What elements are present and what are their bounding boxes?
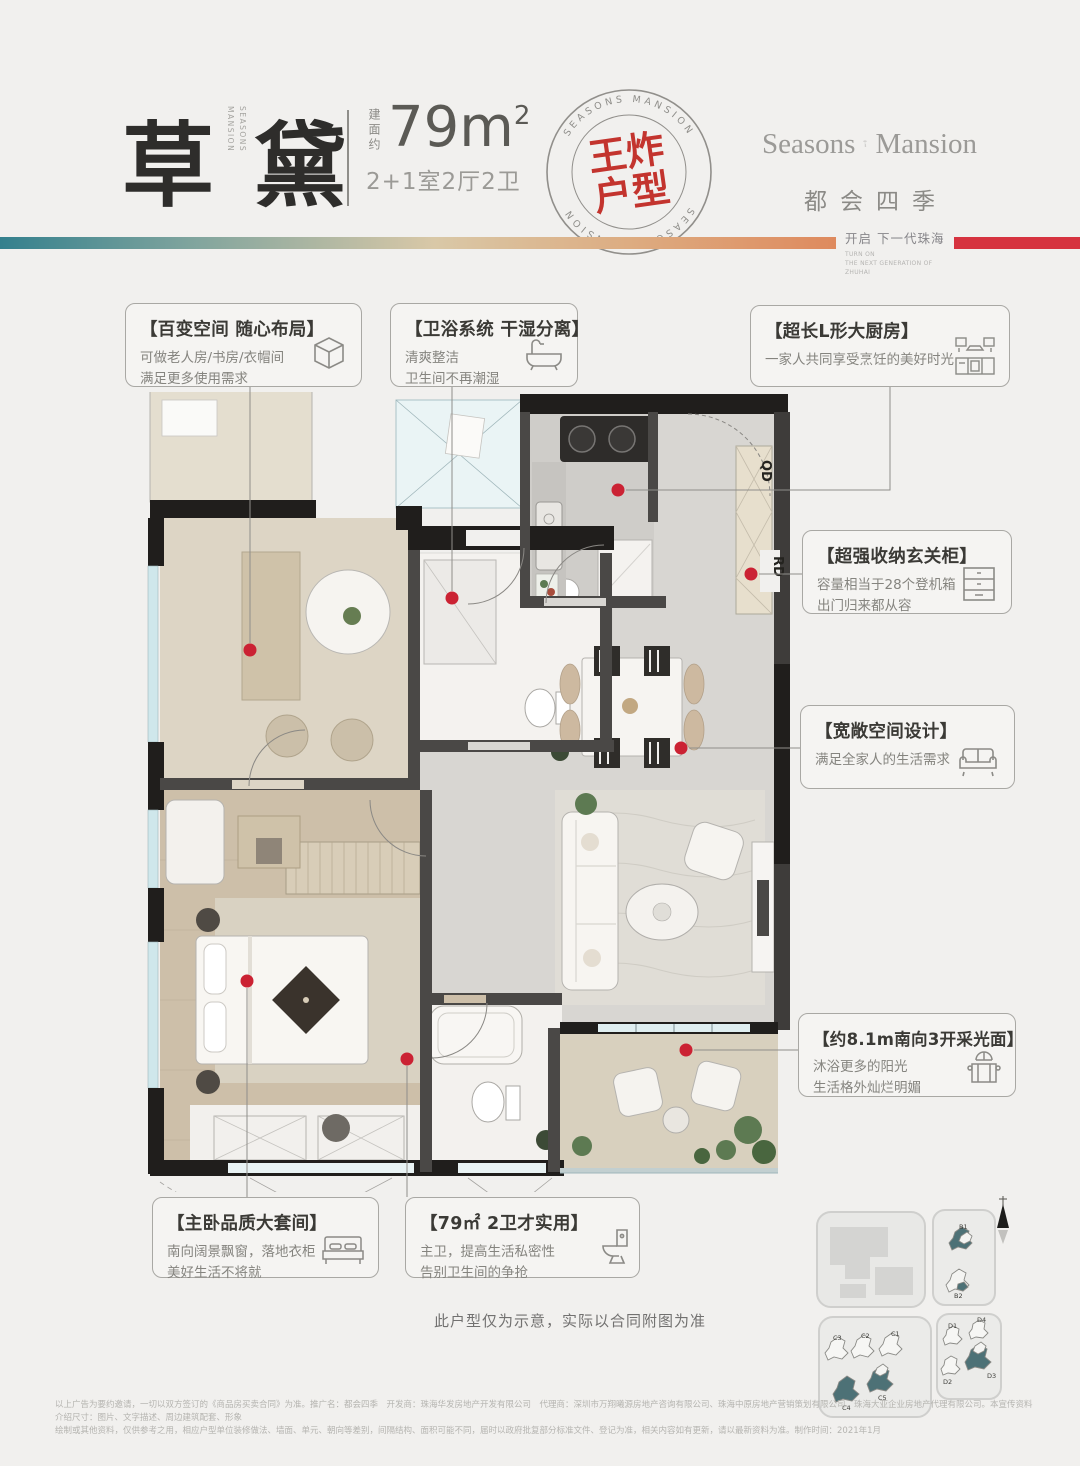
- legal-line-1: 以上广告为要约邀请，一切以双方签订的《商品房买卖合同》为准。推广名：都会四季 开…: [55, 1399, 1040, 1425]
- sofa-icon: [955, 744, 1001, 778]
- title-divider: [347, 110, 349, 206]
- best-layout-stamp: SEASONS MANSION SEASONS MANSION 王炸 户型: [543, 86, 715, 258]
- callout-south-facing: 【约8.1m南向3开采光面】 沐浴更多的阳光生活格外灿烂明媚: [798, 1013, 1016, 1097]
- title-char-2: 黛: [254, 92, 346, 225]
- layout-spec: 2+1室2厅2卫: [366, 162, 530, 196]
- legal-fine-print: 以上广告为要约邀请，一切以双方签订的《商品房买卖合同》为准。推广名：都会四季 开…: [55, 1399, 1040, 1439]
- callout-title: 【79㎡ 2卫才实用】: [420, 1210, 625, 1235]
- floor-plan: QD RD: [135, 392, 795, 1192]
- svg-text:C3: C3: [833, 1334, 842, 1342]
- area-value: 79m2: [388, 100, 530, 156]
- label-rd: RD: [770, 556, 785, 577]
- project-title: 草 SEASONS MANSION 黛: [122, 92, 346, 225]
- svg-text:B1: B1: [959, 1223, 968, 1231]
- logo-cn: 都会四季: [775, 182, 977, 216]
- north-arrow-icon: [997, 1196, 1009, 1244]
- svg-text:D4: D4: [977, 1316, 986, 1324]
- callout-spacious-design: 【宽敞空间设计】 满足全家人的生活需求: [800, 705, 1015, 789]
- svg-text:D2: D2: [943, 1378, 952, 1386]
- stamp-main-text: 王炸 户型: [586, 126, 673, 220]
- title-side-text: SEASONS MANSION: [224, 106, 248, 186]
- title-char-1: 草: [122, 92, 214, 225]
- tagline-en: TURN ONTHE NEXT GENERATION OF ZHUHAI: [845, 250, 953, 277]
- svg-text:B2: B2: [954, 1292, 963, 1300]
- area-info: 建面约 79m2 2+1室2厅2卫: [366, 100, 530, 196]
- tagline-cn: 开启 下一代珠海: [845, 228, 953, 247]
- cube-icon: [310, 334, 348, 372]
- callout-two-bathrooms: 【79㎡ 2卫才实用】 主卫，提高生活私密性告别卫生间的争抢: [405, 1197, 640, 1278]
- cabinet-icon: [960, 565, 998, 603]
- gradient-rule-accent: [954, 237, 1080, 249]
- callout-master-suite: 【主卧品质大套间】 南向阔景飘窗，落地衣柜美好生活不将就: [152, 1197, 379, 1278]
- callout-title: 【宽敞空间设计】: [815, 718, 1000, 743]
- site-plan: B1 B2 C1 C2 C3 C4 C5 D1 D2 D3 D4: [815, 1192, 1015, 1427]
- tagline: 开启 下一代珠海 TURN ONTHE NEXT GENERATION OF Z…: [845, 228, 953, 277]
- label-qd: QD: [758, 460, 773, 482]
- logo-en-right: Mansion: [876, 128, 978, 161]
- bay-window-icon: [966, 1048, 1002, 1086]
- brand-logo: Seasons Mansion 都会四季: [762, 118, 977, 216]
- callout-foyer-cabinet: 【超强收纳玄关柜】 容量相当于28个登机箱出门归来都从容: [802, 530, 1012, 614]
- svg-text:户型: 户型: [591, 166, 672, 220]
- toilet-icon: [597, 1227, 631, 1267]
- bed-icon: [321, 1233, 365, 1267]
- key-icon: [863, 118, 867, 170]
- gradient-rule: [0, 237, 836, 249]
- logo-en-left: Seasons: [762, 128, 855, 161]
- callout-flex-space: 【百变空间 随心布局】 可做老人房/书房/衣帽间满足更多使用需求: [125, 303, 362, 387]
- kitchen-icon: [954, 336, 996, 376]
- bathtub-icon: [524, 336, 564, 372]
- svg-text:D3: D3: [987, 1372, 996, 1380]
- callout-title: 【主卧品质大套间】: [167, 1210, 364, 1235]
- svg-text:C2: C2: [861, 1332, 870, 1340]
- area-label: 建面约: [366, 108, 383, 153]
- legal-line-2: 绘制或其他资料，仅供参考之用，相应户型单位装修做法、墙面、单元、朝向等差别，间隔…: [55, 1425, 1040, 1438]
- callout-bath-system: 【卫浴系统 干湿分离】 清爽整洁卫生间不再潮湿: [390, 303, 578, 387]
- svg-text:D1: D1: [948, 1322, 957, 1330]
- callout-title: 【约8.1m南向3开采光面】: [813, 1026, 1001, 1050]
- poster-page: 草 SEASONS MANSION 黛 建面约 79m2 2+1室2厅2卫 SE…: [0, 0, 1080, 1466]
- callout-kitchen: 【超长L形大厨房】 一家人共同享受烹饪的美好时光: [750, 305, 1010, 387]
- callout-body: 主卫，提高生活私密性告别卫生间的争抢: [420, 1242, 625, 1284]
- plan-disclaimer-note: 此户型仅为示意，实际以合同附图为准: [370, 1310, 770, 1331]
- svg-text:C1: C1: [891, 1330, 900, 1338]
